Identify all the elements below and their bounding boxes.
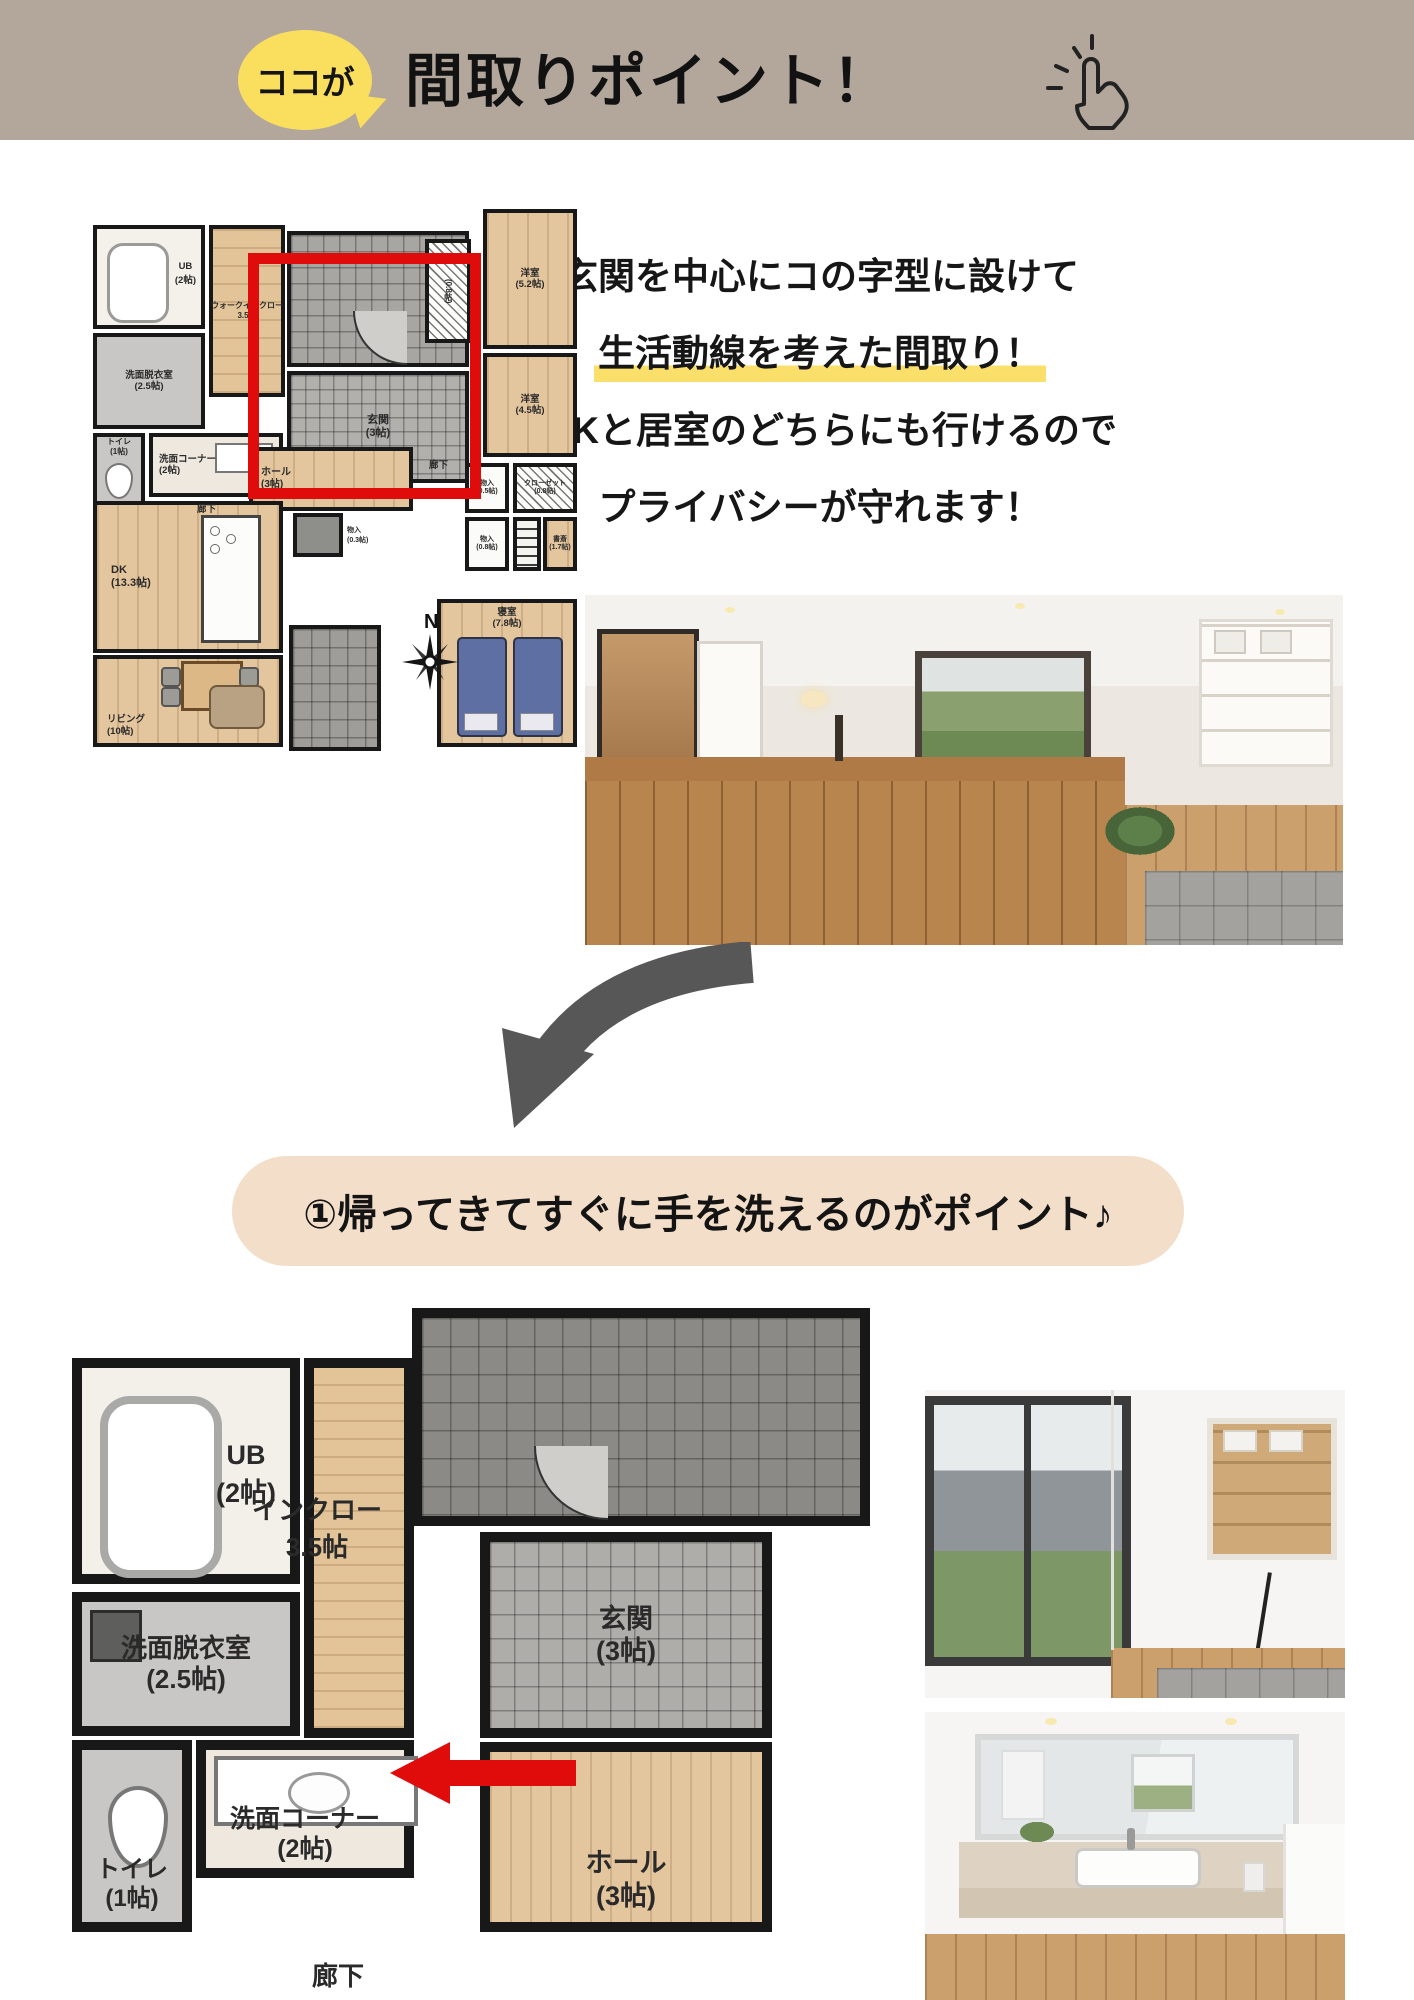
compass-n-label: N — [424, 611, 438, 633]
window-mullion — [1024, 1405, 1031, 1657]
tap-hand-icon — [1040, 26, 1136, 130]
red-arrow-bar — [448, 1760, 576, 1786]
point-banner: ①帰ってきてすぐに手を洗えるのがポイント♪ — [232, 1156, 1184, 1266]
intro-line-3: LDKと居室のどちらにも行けるので — [505, 392, 1135, 469]
shoe-shelf-niche — [1207, 1418, 1337, 1560]
intro-line-4: プライバシーが守れます！ — [505, 469, 1135, 546]
red-arrow-head — [390, 1742, 450, 1804]
bathtub-icon — [107, 243, 169, 323]
downlight — [1045, 1718, 1057, 1725]
room-ub: UB(2帖) — [93, 225, 205, 329]
faucet — [1127, 1828, 1135, 1850]
window-view — [934, 1405, 1122, 1657]
porch-tiles-zoom — [412, 1308, 870, 1526]
page-title: 間取りポイント！ — [405, 34, 893, 118]
counter-decor — [835, 715, 843, 761]
red-highlight-box — [248, 253, 481, 499]
room-shinshitsu: 寝室(7.8帖) — [437, 599, 577, 747]
speech-bubble-tail — [349, 84, 392, 129]
terrace-tiles — [289, 625, 381, 751]
speech-bubble: ココが — [238, 30, 372, 130]
photo-entrance — [925, 1390, 1345, 1698]
intro-text-block: 玄関を中心にコの字型に設けて 生活動線を考えた間取り！ LDKと居室のどちらにも… — [505, 238, 1135, 546]
downlight — [1015, 603, 1025, 609]
vanity-front — [959, 1888, 1301, 1918]
sink — [1075, 1848, 1201, 1888]
room-dk: DK(13.3帖) — [93, 501, 283, 653]
wall-corner-line — [1111, 1390, 1114, 1650]
room-living: リビング(10帖) — [93, 655, 283, 747]
window-view — [922, 658, 1084, 770]
highlighted-text: 生活動線を考えた間取り！ — [594, 333, 1046, 382]
curved-arrow-icon — [500, 942, 768, 1130]
plant — [1017, 1820, 1057, 1844]
photo-hallway — [585, 595, 1343, 945]
bubble-text: ココが — [256, 56, 355, 104]
infographic-page: ココが 間取りポイント！ 玄関を中心にコの字型に設けて 生活動線を考えた間取り！… — [0, 0, 1414, 2000]
room-mono-08: 物入(0.8帖) — [465, 517, 509, 571]
room-yoshitsu-52: 洋室(5.2帖) — [483, 209, 577, 349]
storage-box — [1214, 630, 1246, 654]
room-senmen-datsui: 洗面脱衣室(2.5帖) — [93, 333, 205, 429]
wall-sconce — [801, 691, 827, 707]
agave-plant — [1105, 807, 1175, 855]
room-toilet-zoom: トイレ(1帖) — [72, 1740, 192, 1932]
main-floor-plan: UB(2帖) ウォークインクロー3.5帖 洗面脱衣室(2.5帖) トイレ(1帖)… — [85, 195, 577, 751]
cup-item — [1243, 1862, 1265, 1892]
wic-label: インクロー3.5帖 — [212, 1490, 422, 1564]
downlight — [725, 607, 735, 613]
stairs — [513, 517, 541, 571]
room-label: UB(2帖) — [175, 261, 196, 286]
storage-box — [1269, 1430, 1303, 1452]
mono-03-label: 物入(0.3帖) — [347, 525, 368, 545]
mirror-reflection-door — [1001, 1750, 1045, 1820]
wood-floor — [925, 1934, 1345, 2000]
point-banner-text: ①帰ってきてすぐに手を洗えるのがポイント♪ — [303, 1182, 1112, 1240]
entry-tile-floor — [1157, 1668, 1345, 1698]
room-genkan-zoom: 玄関(3帖) — [480, 1532, 772, 1738]
downlight — [1275, 609, 1285, 615]
photo-washroom — [925, 1712, 1345, 2000]
corridor-label-zoom: 廊下 — [312, 1956, 364, 1993]
room-shosai: 書斎(1.7帖) — [543, 517, 577, 571]
entry-tile-floor — [1145, 871, 1343, 945]
umbrella — [1254, 1572, 1272, 1660]
counter-top — [585, 757, 1125, 781]
storage-box — [1223, 1430, 1257, 1452]
room-senmen-datsui-zoom: 洗面脱衣室(2.5帖) — [72, 1592, 300, 1736]
header-band: ココが 間取りポイント！ — [0, 0, 1414, 140]
downlight — [1225, 1718, 1237, 1725]
room-closet-08: クローゼット(0.8帖) — [513, 463, 577, 513]
intro-line-2: 生活動線を考えた間取り！ — [505, 315, 1135, 392]
wood-counter — [585, 781, 1125, 945]
room-senmen-corner-zoom: 洗面コーナー(2帖) — [196, 1740, 414, 1878]
side-cabinet — [1283, 1824, 1345, 1948]
room-mono-03 — [293, 513, 343, 557]
mirror-reflection-window — [1131, 1754, 1195, 1812]
bathtub-icon — [100, 1396, 222, 1578]
window — [925, 1396, 1131, 1666]
storage-box — [1260, 630, 1292, 654]
intro-line-1: 玄関を中心にコの字型に設けて — [505, 238, 1135, 315]
entry-door-arc — [534, 1446, 608, 1520]
zoomed-floor-plan: UB(2帖) インクロー3.5帖 洗面脱衣室(2.5帖) 玄関(3帖) ホール(… — [60, 1308, 870, 2000]
shelf-unit — [1199, 619, 1333, 767]
room-yoshitsu-45: 洋室(4.5帖) — [483, 353, 577, 457]
